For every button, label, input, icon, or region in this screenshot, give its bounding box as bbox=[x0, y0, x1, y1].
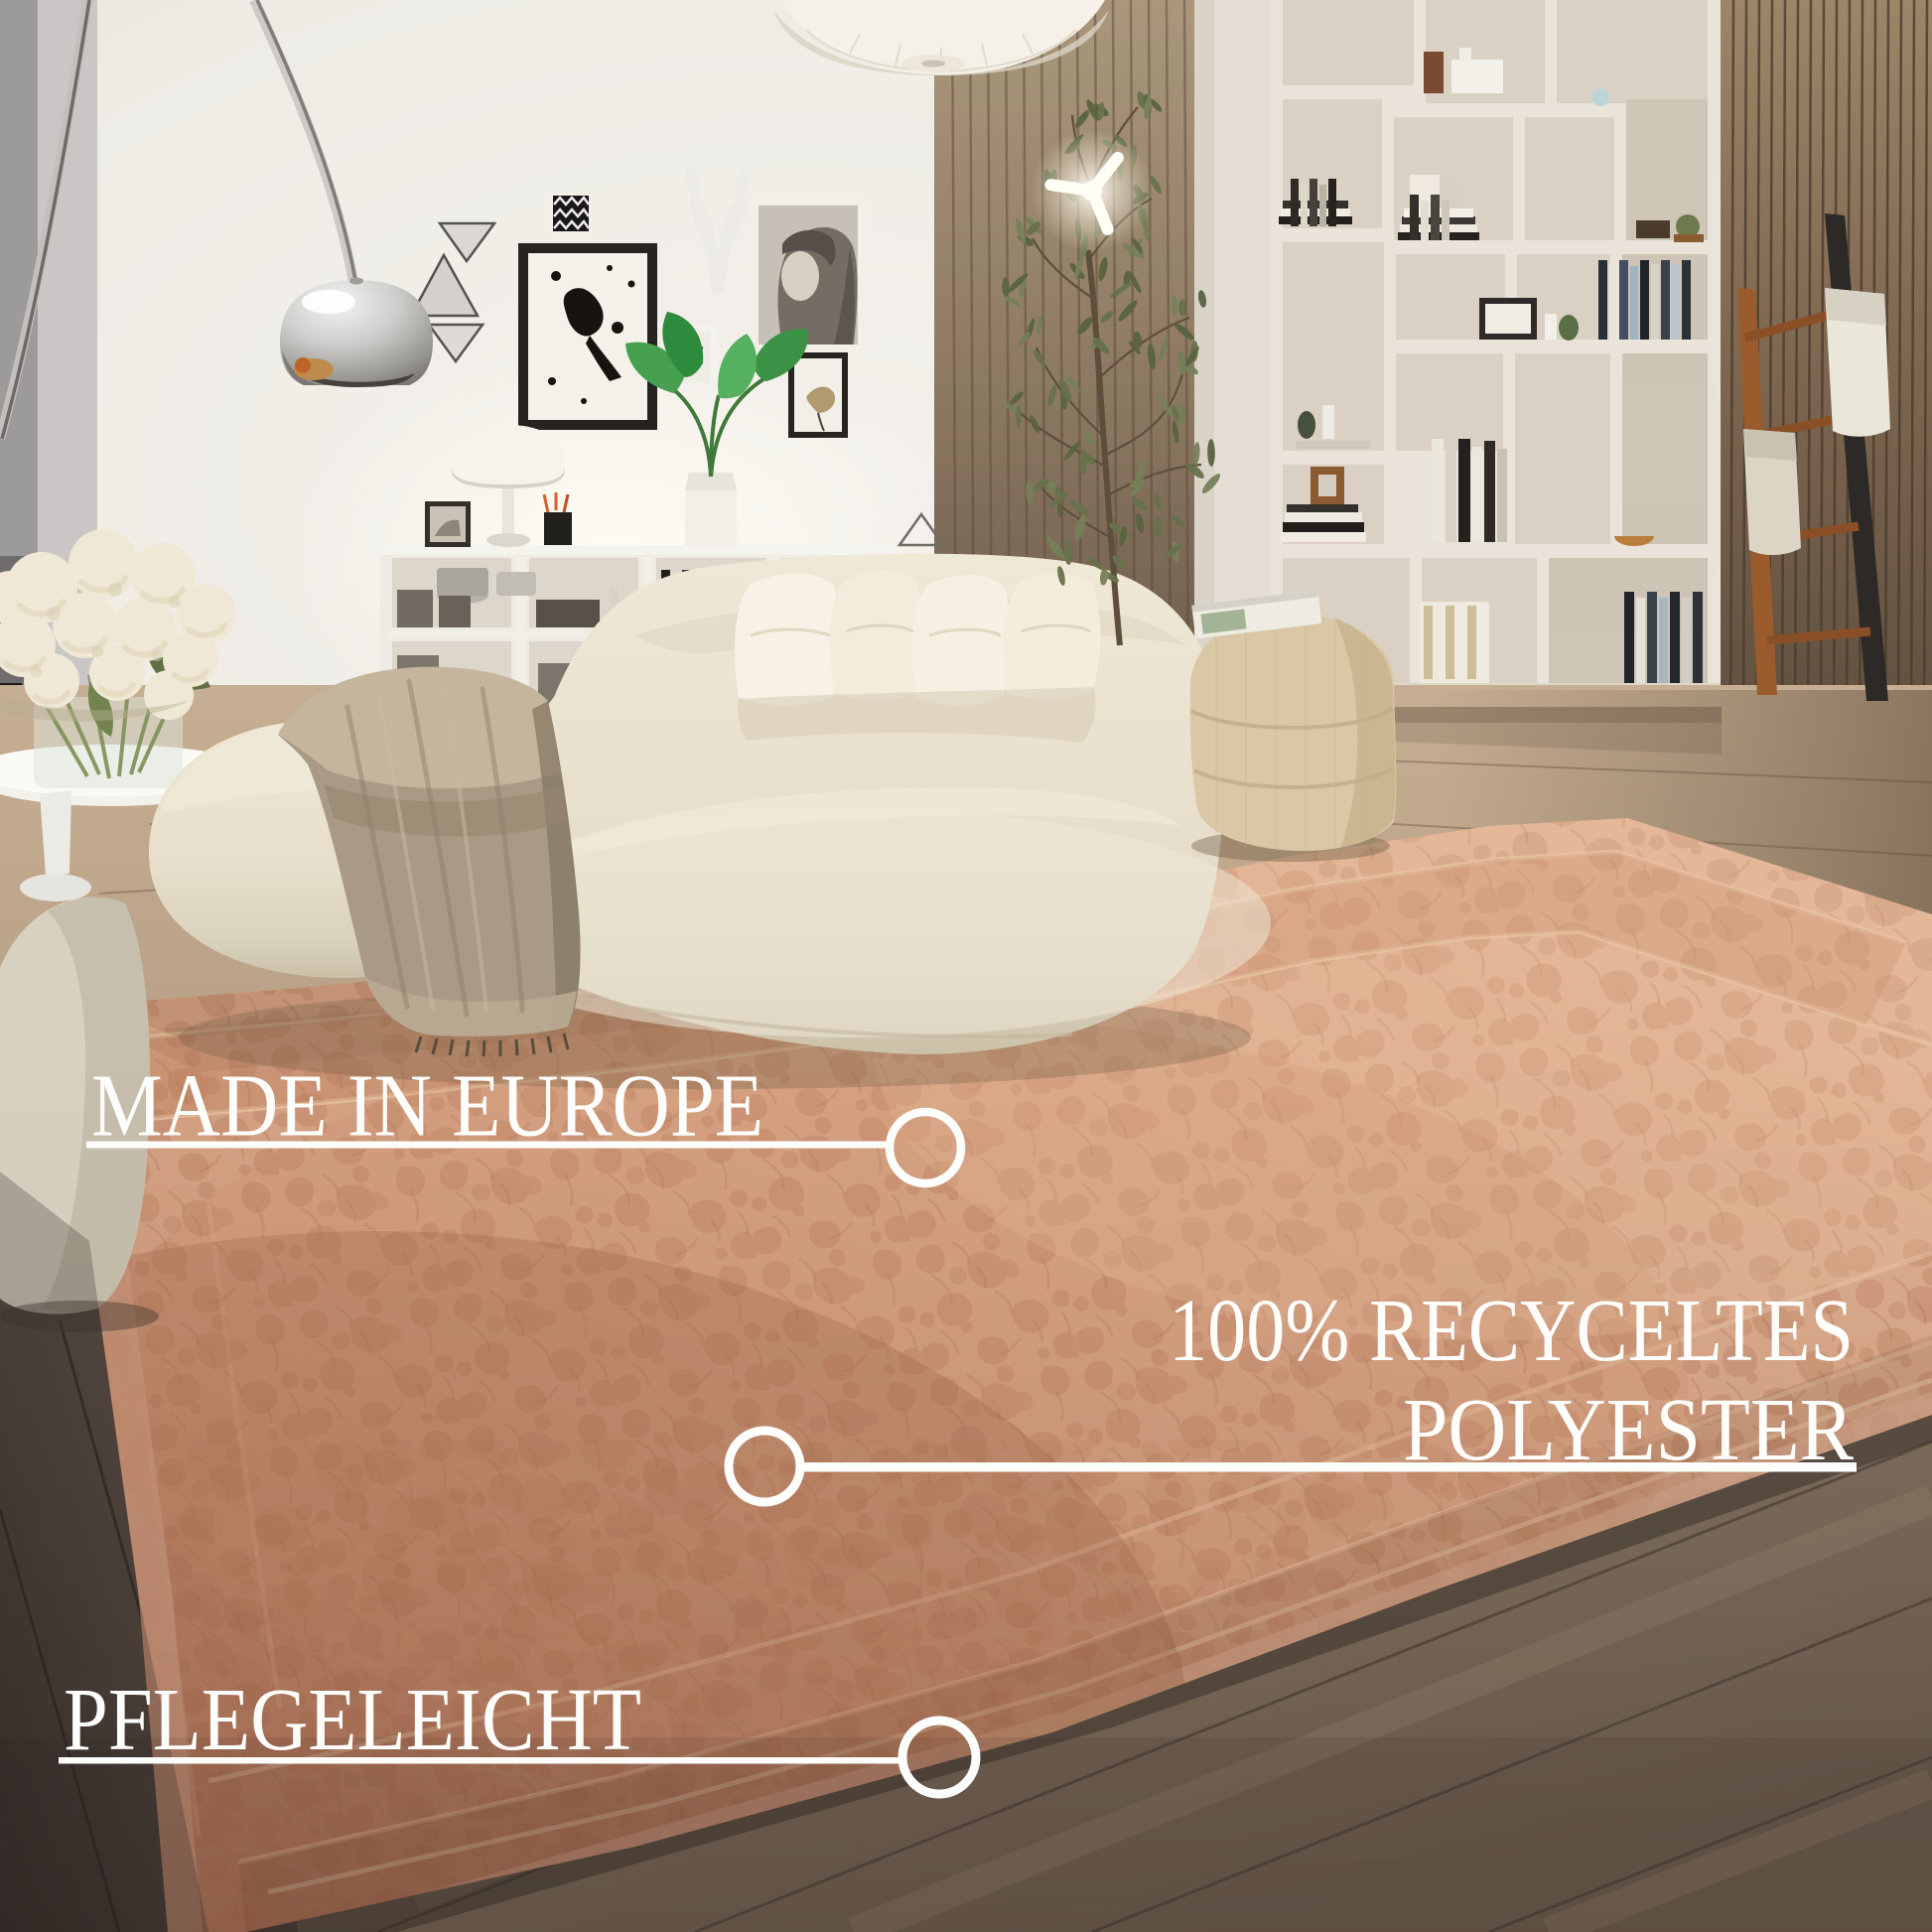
svg-text:PFLEGELEICHT: PFLEGELEICHT bbox=[64, 1671, 641, 1769]
svg-text:100% RECYCELTES: 100% RECYCELTES bbox=[1169, 1282, 1854, 1380]
svg-text:MADE IN EUROPE: MADE IN EUROPE bbox=[91, 1057, 763, 1156]
